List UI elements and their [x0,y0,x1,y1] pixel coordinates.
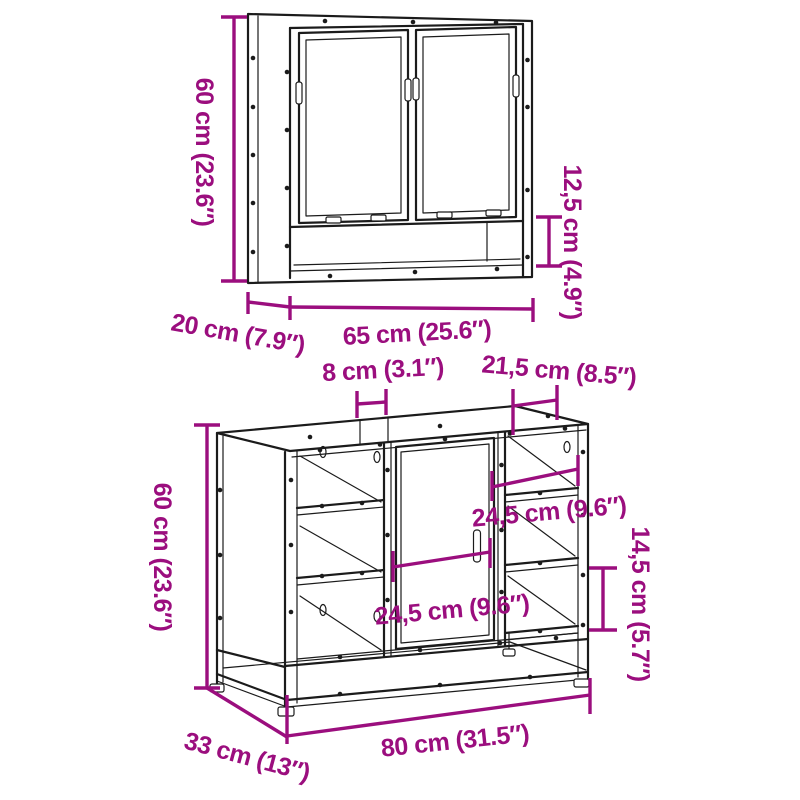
hinge-icon [296,82,302,104]
dim-sink-top-gap: 8 cm (3.1″) [321,353,444,418]
dim-mirror-height-label: 60 cm (23.6″) [190,78,218,227]
door-handle-icon [474,530,481,562]
handle-icon [405,79,411,101]
dim-sink-height-label: 60 cm (23.6″) [148,483,176,632]
dim-sink-top-gap-label: 8 cm (3.1″) [321,353,444,387]
dim-sink-top-right-panel-label: 21,5 cm (8.5″) [481,350,638,391]
hinge-icon [513,75,519,97]
left-shelves [297,456,384,650]
dim-sink-depth-width: 33 cm (13″) 80 cm (31.5″) [181,678,590,787]
dim-mirror-depth-width: 20 cm (7.9″) 65 cm (25.6″) [169,292,533,360]
dim-mirror-width-label: 65 cm (25.6″) [342,315,492,351]
dim-sink-width-label: 80 cm (31.5″) [380,719,531,762]
mirror-door-right [416,27,516,220]
dim-mirror-height: 60 cm (23.6″) [190,17,247,281]
foot-pad [503,649,515,656]
dim-sink-right-shelf-spacing: 14,5 cm (5.7″) [589,526,654,681]
foot-pad [574,679,589,687]
dim-sink-height: 60 cm (23.6″) [148,425,220,688]
dim-mirror-shelf-height-label: 12,5 cm (4.9″) [558,164,586,319]
mirror-door-left [299,30,408,223]
dim-mirror-depth-label: 20 cm (7.9″) [169,308,307,359]
sink-cabinet-drawing [210,406,589,716]
dim-sink-right-shelf-spacing-label: 14,5 cm (5.7″) [626,526,654,681]
dim-mirror-shelf-height: 12,5 cm (4.9″) [536,164,586,319]
handle-icon [413,78,419,100]
dimension-diagram: 60 cm (23.6″) 12,5 cm (4.9″) 20 cm (7.9″… [0,0,800,800]
mirror-cabinet-drawing [248,14,532,283]
